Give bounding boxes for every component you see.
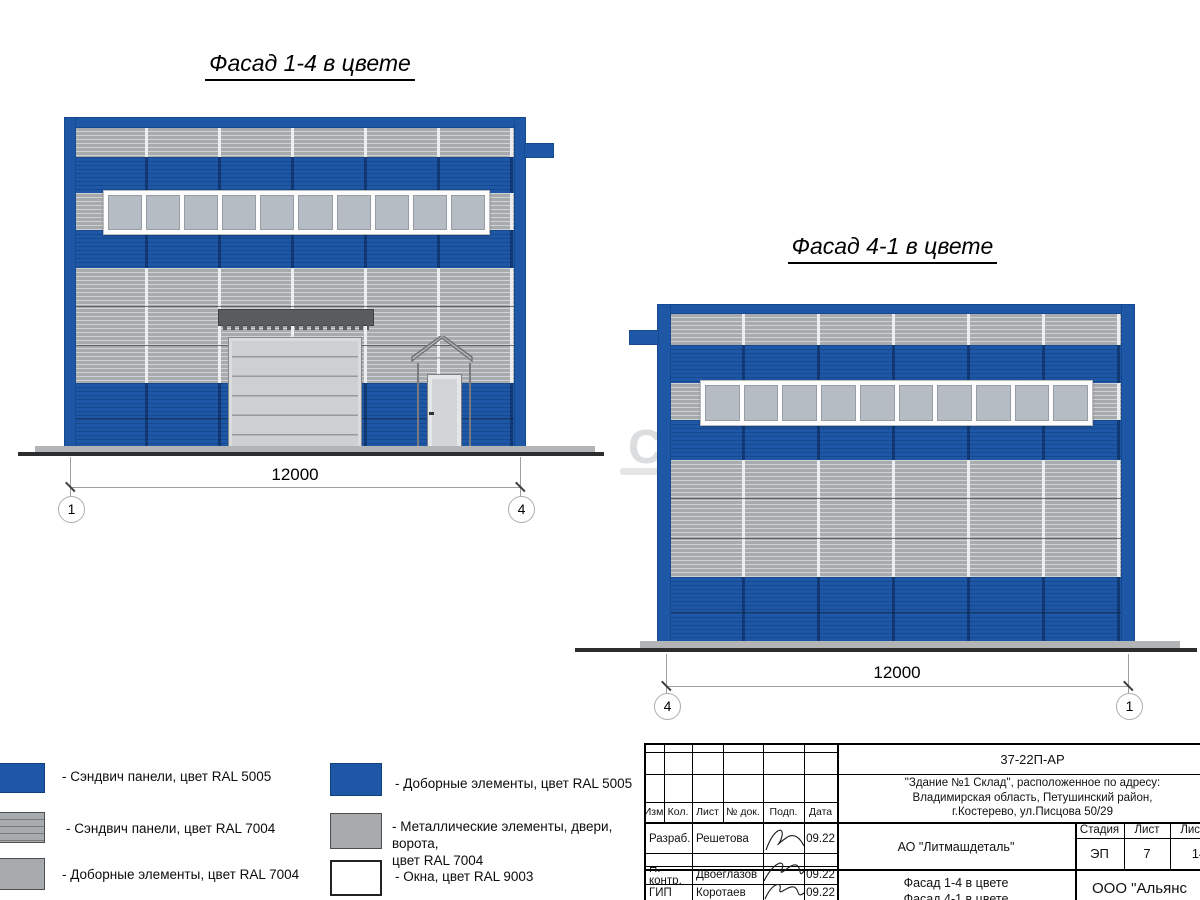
window-pane	[260, 195, 294, 230]
legend-label: - Доборные элементы, цвет RAL 5005	[395, 775, 632, 792]
window-pane	[1015, 385, 1050, 421]
corner-flashing	[1122, 305, 1134, 650]
corner-flashing	[515, 118, 525, 455]
window-pane	[782, 385, 817, 421]
facade-4-1-title: Фасад 4-1 в цвете	[745, 233, 1040, 264]
tb-stage-value: ЭП	[1075, 838, 1124, 869]
axis-bubble: 4	[508, 496, 535, 523]
facade-1-4-title: Фасад 1-4 в цвете	[165, 50, 455, 81]
dimension-value: 12000	[847, 663, 947, 683]
window-pane	[1053, 385, 1088, 421]
legend-swatch-ral7004-panels	[0, 812, 45, 843]
panel-band	[670, 420, 1122, 460]
legend-swatch-ral7004-trim	[0, 858, 45, 890]
corner-flashing	[658, 305, 670, 650]
canopy-post	[469, 363, 471, 455]
window-pane	[184, 195, 218, 230]
tb-date: 09.22	[804, 824, 837, 853]
canopy-post	[417, 363, 419, 455]
gutter-outlet	[630, 331, 658, 344]
window-pane	[337, 195, 371, 230]
tb-sheet-label: Лист	[1124, 822, 1170, 838]
window-pane	[375, 195, 409, 230]
tb-doc-number: 37-22П-АР	[837, 745, 1200, 774]
legend-swatch-ral5005	[0, 763, 45, 793]
window-pane	[413, 195, 447, 230]
tb-client: АО "Литмашдеталь"	[837, 824, 1075, 869]
tb-role: Разраб.	[649, 824, 692, 853]
title-block: Изм. Кол. Лист № док. Подп. Дата Разраб.…	[644, 743, 1200, 900]
facade-1-4-building	[65, 118, 525, 455]
window-pane	[821, 385, 856, 421]
tb-date: 09.22	[804, 884, 837, 900]
window-pane	[222, 195, 256, 230]
window-pane	[744, 385, 779, 421]
tb-role: Н. контр.	[649, 866, 692, 884]
tb-col-podp: Подп.	[763, 802, 804, 822]
window-pane	[451, 195, 485, 230]
door-handle	[429, 412, 434, 415]
legend-label: - Доборные элементы, цвет RAL 7004	[62, 866, 299, 883]
extension-line	[520, 457, 521, 496]
facade-4-1-building	[658, 305, 1134, 650]
gutter-outlet	[525, 144, 553, 157]
tb-sheets-value: 14	[1170, 838, 1200, 869]
door-canopy	[218, 309, 374, 326]
dimension-line	[70, 487, 520, 488]
dimension-value: 12000	[245, 465, 345, 485]
tb-sheets-label: Листов	[1170, 822, 1200, 838]
panel-band	[670, 313, 1122, 345]
window-pane	[937, 385, 972, 421]
parapet-flashing	[65, 118, 525, 127]
legend-swatch-ral7004-metal	[330, 813, 382, 849]
tb-name: Решетова	[696, 824, 762, 853]
axis-bubble: 1	[58, 496, 85, 523]
axis-bubble: 4	[654, 693, 681, 720]
facade-wall	[670, 305, 1122, 650]
window-pane	[146, 195, 180, 230]
legend-swatch-ral9003	[330, 860, 382, 896]
panel-band	[670, 345, 1122, 383]
window-pane	[705, 385, 740, 421]
tb-col-izm: Изм.	[646, 802, 664, 822]
panel-band	[75, 230, 515, 268]
tb-sheet-value: 7	[1124, 838, 1170, 869]
tb-col-kol: Кол.	[664, 802, 692, 822]
tb-col-data: Дата	[804, 802, 837, 822]
tb-stage-label: Стадия	[1075, 822, 1124, 838]
tb-company: ООО "Альянс	[1092, 871, 1200, 900]
corner-flashing	[65, 118, 75, 455]
entry-door-gable-canopy	[411, 336, 473, 363]
ground-line	[575, 648, 1197, 652]
window-strip	[103, 190, 490, 235]
tb-name: Двоеглазов	[696, 866, 762, 884]
window-pane	[860, 385, 895, 421]
legend-label: - Сэндвич панели, цвет RAL 5005	[62, 768, 271, 785]
panel-band	[670, 577, 1122, 650]
window-pane	[298, 195, 332, 230]
legend-label: - Сэндвич панели, цвет RAL 7004	[66, 820, 275, 837]
drawing-sheet: Фасад 1-4 в цвете	[0, 0, 1200, 900]
tb-col-doc: № док.	[723, 802, 763, 822]
extension-line	[70, 457, 71, 496]
tb-object-address: "Здание №1 Склад", расположенное по адре…	[837, 774, 1200, 822]
window-pane	[108, 195, 142, 230]
panel-band	[75, 157, 515, 193]
tb-sheet-title: Фасад 1-4 в цвете Фасад 4-1 в цвете	[837, 871, 1075, 900]
parapet-flashing	[658, 305, 1134, 313]
tb-date: 09.22	[804, 866, 837, 884]
axis-bubble: 1	[1116, 693, 1143, 720]
ground-line	[18, 452, 604, 456]
window-pane	[976, 385, 1011, 421]
panel-band	[75, 127, 515, 157]
tb-role: ГИП	[649, 884, 692, 900]
dimension-line	[666, 686, 1128, 687]
panel-band	[670, 460, 1122, 577]
legend-swatch-ral5005-trim	[330, 763, 382, 796]
legend-label: - Металлические элементы, двери, ворота,…	[392, 818, 662, 869]
signature	[760, 877, 808, 900]
tb-name: Коротаев	[696, 884, 762, 900]
sectional-gate	[228, 337, 362, 455]
window-strip	[700, 380, 1093, 426]
tb-col-list: Лист	[692, 802, 723, 822]
legend-label: - Окна, цвет RAL 9003	[395, 868, 533, 885]
window-pane	[899, 385, 934, 421]
